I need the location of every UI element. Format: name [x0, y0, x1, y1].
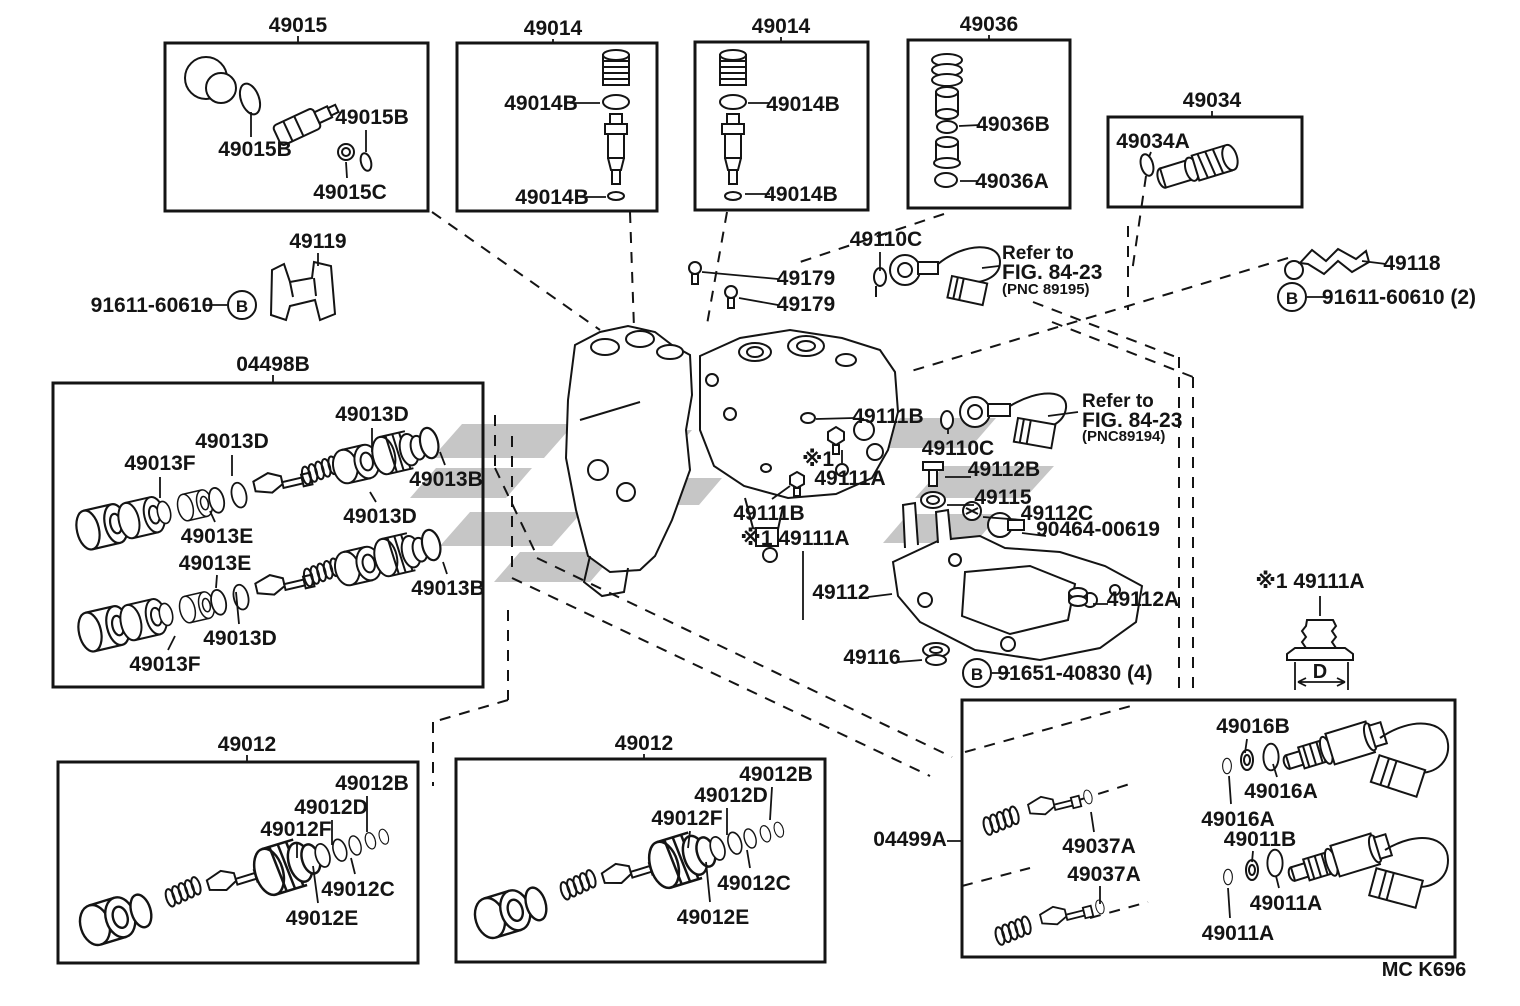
part-label: 49036: [960, 13, 1018, 36]
sketch-04499A-kit1: [980, 785, 1095, 836]
part-label: 49015C: [313, 181, 387, 204]
part-label: 49014B: [766, 93, 840, 116]
sketch-pressure-switch-upper: [890, 247, 1000, 305]
part-label: 04499A: [873, 828, 947, 851]
part-label: 49015: [269, 14, 328, 37]
part-label: 49013F: [124, 452, 195, 475]
sketch-49014-kit-left: [603, 50, 629, 200]
part-label: 49014: [752, 15, 811, 38]
sketch-49112A-grommet: [1069, 588, 1087, 606]
circled-letter-B-bottom: B: [963, 659, 991, 687]
part-label: 04498B: [236, 353, 310, 376]
sketch-04499A-kit2: [992, 895, 1107, 946]
part-label: MC K696: [1382, 959, 1466, 981]
part-label: 49011A: [1202, 922, 1274, 945]
diagram-canvas: B B B 490154901449014490364903449015B490…: [0, 0, 1520, 1006]
part-label: 49014B: [515, 186, 589, 209]
part-label: 49012B: [335, 772, 409, 795]
part-label: 49119: [289, 230, 346, 253]
part-label: 49034: [1183, 89, 1242, 112]
part-label: 49011B: [1224, 828, 1296, 851]
parts-diagram-page: B B B 490154901449014490364903449015B490…: [0, 0, 1520, 1006]
part-label: 49014: [524, 17, 583, 40]
part-label: 90464-00619: [1036, 518, 1160, 541]
part-label: 49013D: [343, 505, 417, 528]
part-label: 49012D: [294, 796, 368, 819]
sketch-49119-bracket: [271, 262, 335, 320]
part-label: 49012F: [651, 807, 722, 830]
part-label: 49013D: [335, 403, 409, 426]
part-label: 49112A: [1107, 588, 1179, 611]
part-label: 49013E: [181, 525, 253, 548]
part-label: ※1 49111A: [740, 527, 849, 550]
sketch-49116-grommet: [923, 643, 949, 665]
part-label: 49110C: [922, 437, 994, 460]
part-label: 49012D: [694, 784, 768, 807]
circled-letter: B: [236, 297, 248, 316]
part-label: 49112B: [968, 458, 1040, 481]
sketch-49118-bracket: [1285, 249, 1369, 279]
part-label: 49014B: [504, 92, 578, 115]
part-label: 49118: [1383, 252, 1441, 275]
part-label: 49012: [615, 732, 673, 755]
part-label: 49016B: [1216, 715, 1290, 738]
part-label: 91651-40830 (4): [997, 662, 1152, 685]
sketch-49179-bolts: [689, 262, 737, 308]
part-label: 49110C: [850, 228, 922, 251]
part-label: (PNC89194): [1082, 428, 1165, 445]
part-label: 49036A: [975, 170, 1049, 193]
circled-letter-B-left: B: [228, 291, 256, 319]
part-label: 49015B: [335, 106, 409, 129]
circled-letter: B: [1286, 289, 1298, 308]
circled-letter-B-right: B: [1278, 283, 1306, 311]
part-label: 49013D: [203, 627, 277, 650]
part-label: 49036B: [976, 113, 1050, 136]
dashed-reference-lines: [432, 176, 1288, 918]
part-label: 49012C: [321, 878, 395, 901]
sketch-49014-kit-right: [720, 50, 746, 200]
part-label: 91611-60610 (2): [1322, 286, 1476, 309]
part-label: 49034A: [1116, 130, 1190, 153]
part-label: 49013D: [195, 430, 269, 453]
part-label: 49013B: [411, 577, 485, 600]
part-label: 49011A: [1250, 892, 1322, 915]
part-label: 49012: [218, 733, 276, 756]
part-label: 49012C: [717, 872, 791, 895]
part-label: 49015B: [218, 138, 292, 161]
part-label: 49116: [843, 646, 900, 669]
part-label: 49012E: [286, 907, 358, 930]
part-label: 49014B: [764, 183, 838, 206]
part-label: 49037A: [1062, 835, 1136, 858]
circled-letter: B: [971, 665, 983, 684]
part-label: 49179: [777, 267, 835, 290]
part-label: ※1 49111A: [1255, 570, 1364, 593]
part-label: 49111B: [852, 405, 923, 428]
part-label: 49016A: [1244, 780, 1318, 803]
part-label: 49013F: [129, 653, 200, 676]
part-label: 49012E: [677, 906, 749, 929]
part-label: 49012F: [260, 818, 331, 841]
sketch-valve-body: [566, 326, 898, 596]
part-label: 49111A: [814, 467, 885, 490]
part-label: 49013E: [179, 552, 251, 575]
part-label: 49013B: [409, 468, 483, 491]
part-label: 91611-60610: [91, 294, 214, 317]
part-label: (PNC 89195): [1002, 281, 1090, 298]
part-label: 49179: [777, 293, 835, 316]
part-label: 49037A: [1067, 863, 1141, 886]
part-label: 49111B: [733, 502, 804, 525]
part-label: 49012B: [739, 763, 813, 786]
part-label: D: [1313, 661, 1327, 683]
sketch-49036-kit: [932, 54, 962, 187]
part-label: 49112: [812, 581, 869, 604]
